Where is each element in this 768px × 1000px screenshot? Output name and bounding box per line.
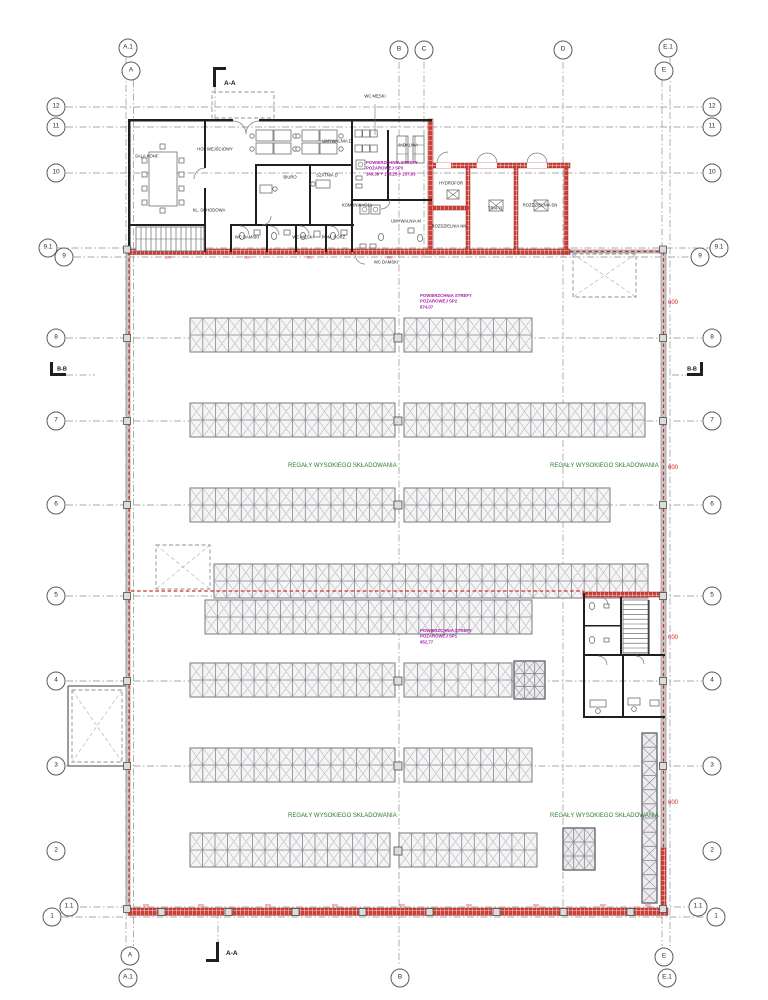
room-label-umywalnia-m: UMYWALNIA M	[391, 220, 421, 225]
floor-plan-drawing	[0, 0, 768, 1000]
grid-bubble-a1-bottom: A.1	[119, 969, 138, 988]
room-label-umywalnia-d: UMYWALNIA D	[322, 140, 351, 145]
grid-bubble-1-right: 1	[707, 908, 726, 927]
grid-bubble-e-top: E	[655, 62, 674, 81]
grid-bubble-3-right: 3	[703, 757, 722, 776]
grid-bubble-11-left: 11	[47, 118, 66, 137]
dimension-label: 600	[307, 256, 313, 259]
fire-wall-office-right	[428, 119, 433, 254]
dimension-label: 600	[533, 904, 539, 907]
dimension-label: 600	[198, 904, 204, 907]
grid-bubble-3-left: 3	[47, 757, 66, 776]
grid-bubble-11-right: 11	[703, 118, 722, 137]
dimension-label: 600	[668, 635, 678, 641]
grid-bubble-5-left: 5	[47, 587, 66, 606]
grid-bubble-a1-top: A.1	[119, 39, 138, 58]
grid-bubble-2-right: 2	[703, 842, 722, 861]
rack-note-2: REGAŁY WYSOKIEGO SKŁADOWANIA	[550, 463, 659, 469]
dimension-label: 600	[332, 904, 338, 907]
room-label-hol: HOL WEJŚCIOWY	[197, 148, 233, 153]
dimension-label: 600	[165, 256, 171, 259]
dimension-label: 600	[668, 800, 678, 806]
section-label-aa-top: A-A	[224, 80, 236, 87]
fire-wall-sanitary-top	[583, 592, 665, 597]
room-label-sala-konf: SALA KONF.	[135, 155, 159, 160]
grid-bubble-4-right: 4	[703, 672, 722, 691]
grid-bubble-91-right: 9.1	[710, 239, 729, 258]
room-label-wc-damski-dolny: WC DAMSKI	[374, 261, 398, 266]
dimension-label: 600	[387, 256, 393, 259]
grid-bubble-5-right: 5	[703, 587, 722, 606]
grid-bubble-e1-top: E.1	[659, 39, 678, 58]
dimension-label: 600	[600, 904, 606, 907]
dock-leveler-topright	[573, 254, 636, 297]
rack-note-4: REGAŁY WYSOKIEGO SKŁADOWANIA	[550, 813, 659, 819]
section-label-bb-right: B-B	[687, 366, 697, 372]
rack-note-1: REGAŁY WYSOKIEGO SKŁADOWANIA	[288, 463, 397, 469]
sanitary-stairs	[623, 600, 648, 653]
fire-zone-sp3-line3: 146,36 + 175,25 = 237,83	[366, 172, 418, 178]
grid-bubble-10-left: 10	[47, 164, 66, 183]
room-label-kl-schodowa: KL. SCHODOWA	[193, 209, 226, 214]
grid-bubble-12-right: 12	[703, 98, 722, 117]
grid-bubble-e-bottom: E	[655, 948, 674, 967]
grid-bubble-d-top: D	[554, 41, 573, 60]
room-label-wc-damski: WC DAMSKI	[235, 236, 259, 241]
fire-zone-sp2-line3: 874,07	[420, 305, 472, 311]
room-label-wc-meski-top: WC MĘSKI	[364, 95, 385, 100]
grid-bubble-2-left: 2	[47, 842, 66, 861]
grid-bubble-b-top: B	[390, 41, 409, 60]
room-label-rozdzielnia-nn: ROZDZIELNIA NN	[432, 225, 467, 230]
section-label-bb-left: B-B	[57, 366, 67, 372]
room-label-jadalnia: JADALNIA	[398, 144, 418, 149]
room-label-pom-porz: POM. PORZ.	[322, 236, 347, 241]
grid-bubble-9-left: 9	[55, 248, 74, 267]
fire-zone-label-sp3: POWIERZCHNIA STREFY POŻAROWEJ SP3 146,36…	[366, 161, 418, 178]
dimension-label: 600	[244, 256, 250, 259]
grid-bubble-11b-right: 1.1	[689, 898, 708, 917]
grid-bubble-12-left: 12	[47, 98, 66, 117]
grid-bubble-10-right: 10	[703, 164, 722, 183]
grid-bubble-c-top: C	[415, 41, 434, 60]
grid-bubble-11b-left: 1.1	[60, 898, 79, 917]
grid-bubble-4-left: 4	[47, 672, 66, 691]
grid-bubble-e1-bottom: E.1	[658, 969, 677, 988]
conference-table	[149, 152, 177, 206]
section-label-aa-bottom: A-A	[226, 950, 238, 957]
room-label-rozdzielnia-sn: ROZDZIELNIA SN	[523, 204, 558, 209]
dimension-label: 600	[668, 300, 678, 306]
dimension-label: 600	[645, 904, 651, 907]
floor-plan-page: { "grid": { "A1": "A.1", "A": "A", "B": …	[0, 0, 768, 1000]
room-label-komunikacja: KOMUNIKACJA	[342, 204, 372, 209]
grid-bubble-8-left: 8	[47, 329, 66, 348]
dimension-label: 600	[466, 904, 472, 907]
entrance-canopy	[212, 92, 274, 118]
fire-zone-sp1-line3: 952,77	[420, 640, 472, 646]
grid-bubble-b-bottom: B	[391, 969, 410, 988]
dimension-label: 600	[668, 465, 678, 471]
grid-bubble-6-right: 6	[703, 496, 722, 515]
grid-bubble-1-left: 1	[43, 908, 62, 927]
room-label-biuro: BIURO	[283, 176, 296, 181]
grid-bubble-a-top: A	[122, 62, 141, 81]
room-label-szatnia-d: SZATNIA D	[316, 174, 337, 179]
grid-bubble-a-bottom: A	[121, 947, 140, 966]
fire-wall-south	[128, 908, 668, 916]
room-label-hydrofor: HYDROFOR	[439, 182, 463, 187]
grid-bubble-8-right: 8	[703, 329, 722, 348]
grid-bubble-7-right: 7	[703, 412, 722, 431]
dimension-label: 600	[265, 904, 271, 907]
fire-zone-label-sp1: POWIERZCHNIA STREFY POŻAROWEJ SP1 952,77	[420, 629, 472, 646]
rack-note-3: REGAŁY WYSOKIEGO SKŁADOWANIA	[288, 813, 397, 819]
dimension-label: 600	[399, 904, 405, 907]
fire-zone-label-sp2: POWIERZCHNIA STREFY POŻAROWEJ SP2 874,07	[420, 294, 472, 311]
dimension-label: 600	[143, 904, 149, 907]
room-label-trafo: TRAFO	[488, 207, 502, 212]
grid-bubble-9-right: 9	[691, 248, 710, 267]
grid-bubble-6-left: 6	[47, 496, 66, 515]
grid-bubble-7-left: 7	[47, 412, 66, 431]
room-label-wc-meski: WC MĘSKI	[292, 236, 313, 241]
